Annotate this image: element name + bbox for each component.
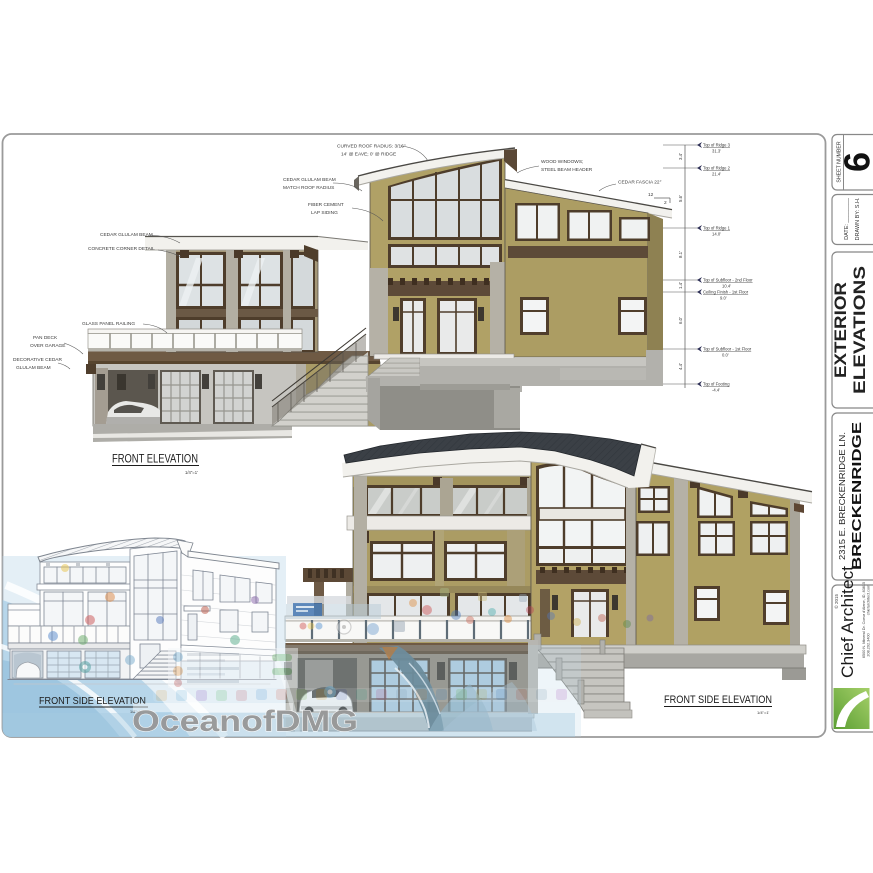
- svg-text:3.4': 3.4': [678, 153, 683, 160]
- svg-text:CONCRETE CORNER DETAIL: CONCRETE CORNER DETAIL: [88, 246, 155, 252]
- svg-text:GLASS PANEL RAILING: GLASS PANEL RAILING: [82, 321, 135, 327]
- svg-text:GLULAM BEAM: GLULAM BEAM: [16, 365, 51, 371]
- svg-text:ELEVATIONS: ELEVATIONS: [850, 266, 869, 394]
- svg-text:21.4': 21.4': [712, 172, 721, 177]
- svg-text:8.1': 8.1': [678, 251, 683, 258]
- svg-text:BRECKENRIDGE: BRECKENRIDGE: [850, 422, 864, 570]
- svg-text:CEDAR FASCIA 22°: CEDAR FASCIA 22°: [618, 180, 662, 186]
- svg-text:14.0': 14.0': [712, 232, 721, 237]
- svg-text:Top of Subfloor - 2nd Floor: Top of Subfloor - 2nd Floor: [703, 278, 753, 283]
- svg-text:6500 N. Mineral Dr. Coeur d': 6500 N. Mineral Dr. Coeur d'Alene, ID, 8…: [862, 582, 866, 658]
- svg-text:1/4"=1': 1/4"=1': [757, 710, 770, 715]
- svg-text:CEDAR GLULAM BEAM: CEDAR GLULAM BEAM: [283, 177, 336, 183]
- svg-text:Top of Ridge 2: Top of Ridge 2: [703, 166, 731, 171]
- svg-text:31.3': 31.3': [712, 149, 721, 154]
- svg-text:2: 2: [664, 200, 667, 206]
- svg-text:9.0': 9.0': [720, 296, 727, 301]
- svg-text:Chief Architect: Chief Architect: [839, 566, 857, 678]
- svg-text:FRONT SIDE ELEVATION: FRONT SIDE ELEVATION: [664, 694, 772, 706]
- svg-text:0.0': 0.0': [722, 353, 729, 358]
- svg-text:4.4': 4.4': [678, 363, 683, 370]
- svg-text:LAP SIDING: LAP SIDING: [311, 210, 338, 216]
- svg-text:CEDAR GLULAM BEAM: CEDAR GLULAM BEAM: [100, 232, 153, 238]
- svg-text:12: 12: [648, 192, 654, 198]
- svg-text:DECORATIVE CEDAR: DECORATIVE CEDAR: [13, 357, 62, 363]
- svg-text:Top of Footing: Top of Footing: [703, 382, 730, 387]
- svg-text:chiefarchitect.com: chiefarchitect.com: [867, 585, 871, 616]
- svg-text:STEEL BEAM HEADER: STEEL BEAM HEADER: [541, 167, 593, 173]
- svg-text:1/4"=1': 1/4"=1': [185, 470, 198, 475]
- svg-text:-4.4': -4.4': [712, 388, 720, 393]
- svg-text:Top of Ridge 3: Top of Ridge 3: [703, 143, 731, 148]
- svg-text:2315 E. BRECKENRIDGE LN.: 2315 E. BRECKENRIDGE LN.: [837, 432, 847, 560]
- svg-text:Top of Subfloor - 1st Floor: Top of Subfloor - 1st Floor: [703, 347, 752, 352]
- svg-text:FIBER CEMENT: FIBER CEMENT: [308, 202, 344, 208]
- svg-text:208.292.3400: 208.292.3400: [867, 633, 871, 656]
- svg-text:OVER GARAGE: OVER GARAGE: [30, 343, 65, 349]
- svg-text:14' @ EAVE; 0' @ RIDGE: 14' @ EAVE; 0' @ RIDGE: [341, 152, 396, 158]
- svg-text:WOOD WINDOWS;: WOOD WINDOWS;: [541, 159, 583, 165]
- svg-text:6: 6: [837, 152, 873, 172]
- svg-text:OceanofDMG: OceanofDMG: [132, 705, 358, 738]
- svg-text:FRONT SIDE ELEVATION: FRONT SIDE ELEVATION: [39, 695, 146, 707]
- svg-text:CURVED ROOF RADIUS: 3/16": CURVED ROOF RADIUS: 3/16": [337, 144, 406, 150]
- svg-text:EXTERIOR: EXTERIOR: [831, 282, 850, 378]
- svg-text:PAN DECK: PAN DECK: [33, 335, 58, 341]
- svg-text:FRONT ELEVATION: FRONT ELEVATION: [112, 454, 198, 466]
- svg-text:1.4': 1.4': [678, 282, 683, 289]
- svg-text:Top of Ridge 1: Top of Ridge 1: [703, 226, 731, 231]
- svg-text:DATE: ________: DATE: ________: [844, 197, 850, 240]
- svg-text:Ceiling Finish - 1st Floor: Ceiling Finish - 1st Floor: [703, 290, 749, 295]
- svg-text:10.4': 10.4': [722, 284, 731, 289]
- svg-text:DRAWN BY: S.H.: DRAWN BY: S.H.: [855, 197, 861, 240]
- svg-text:MATCH ROOF RADIUS: MATCH ROOF RADIUS: [283, 185, 334, 191]
- svg-text:6.0': 6.0': [678, 317, 683, 324]
- svg-text:5.6': 5.6': [678, 195, 683, 202]
